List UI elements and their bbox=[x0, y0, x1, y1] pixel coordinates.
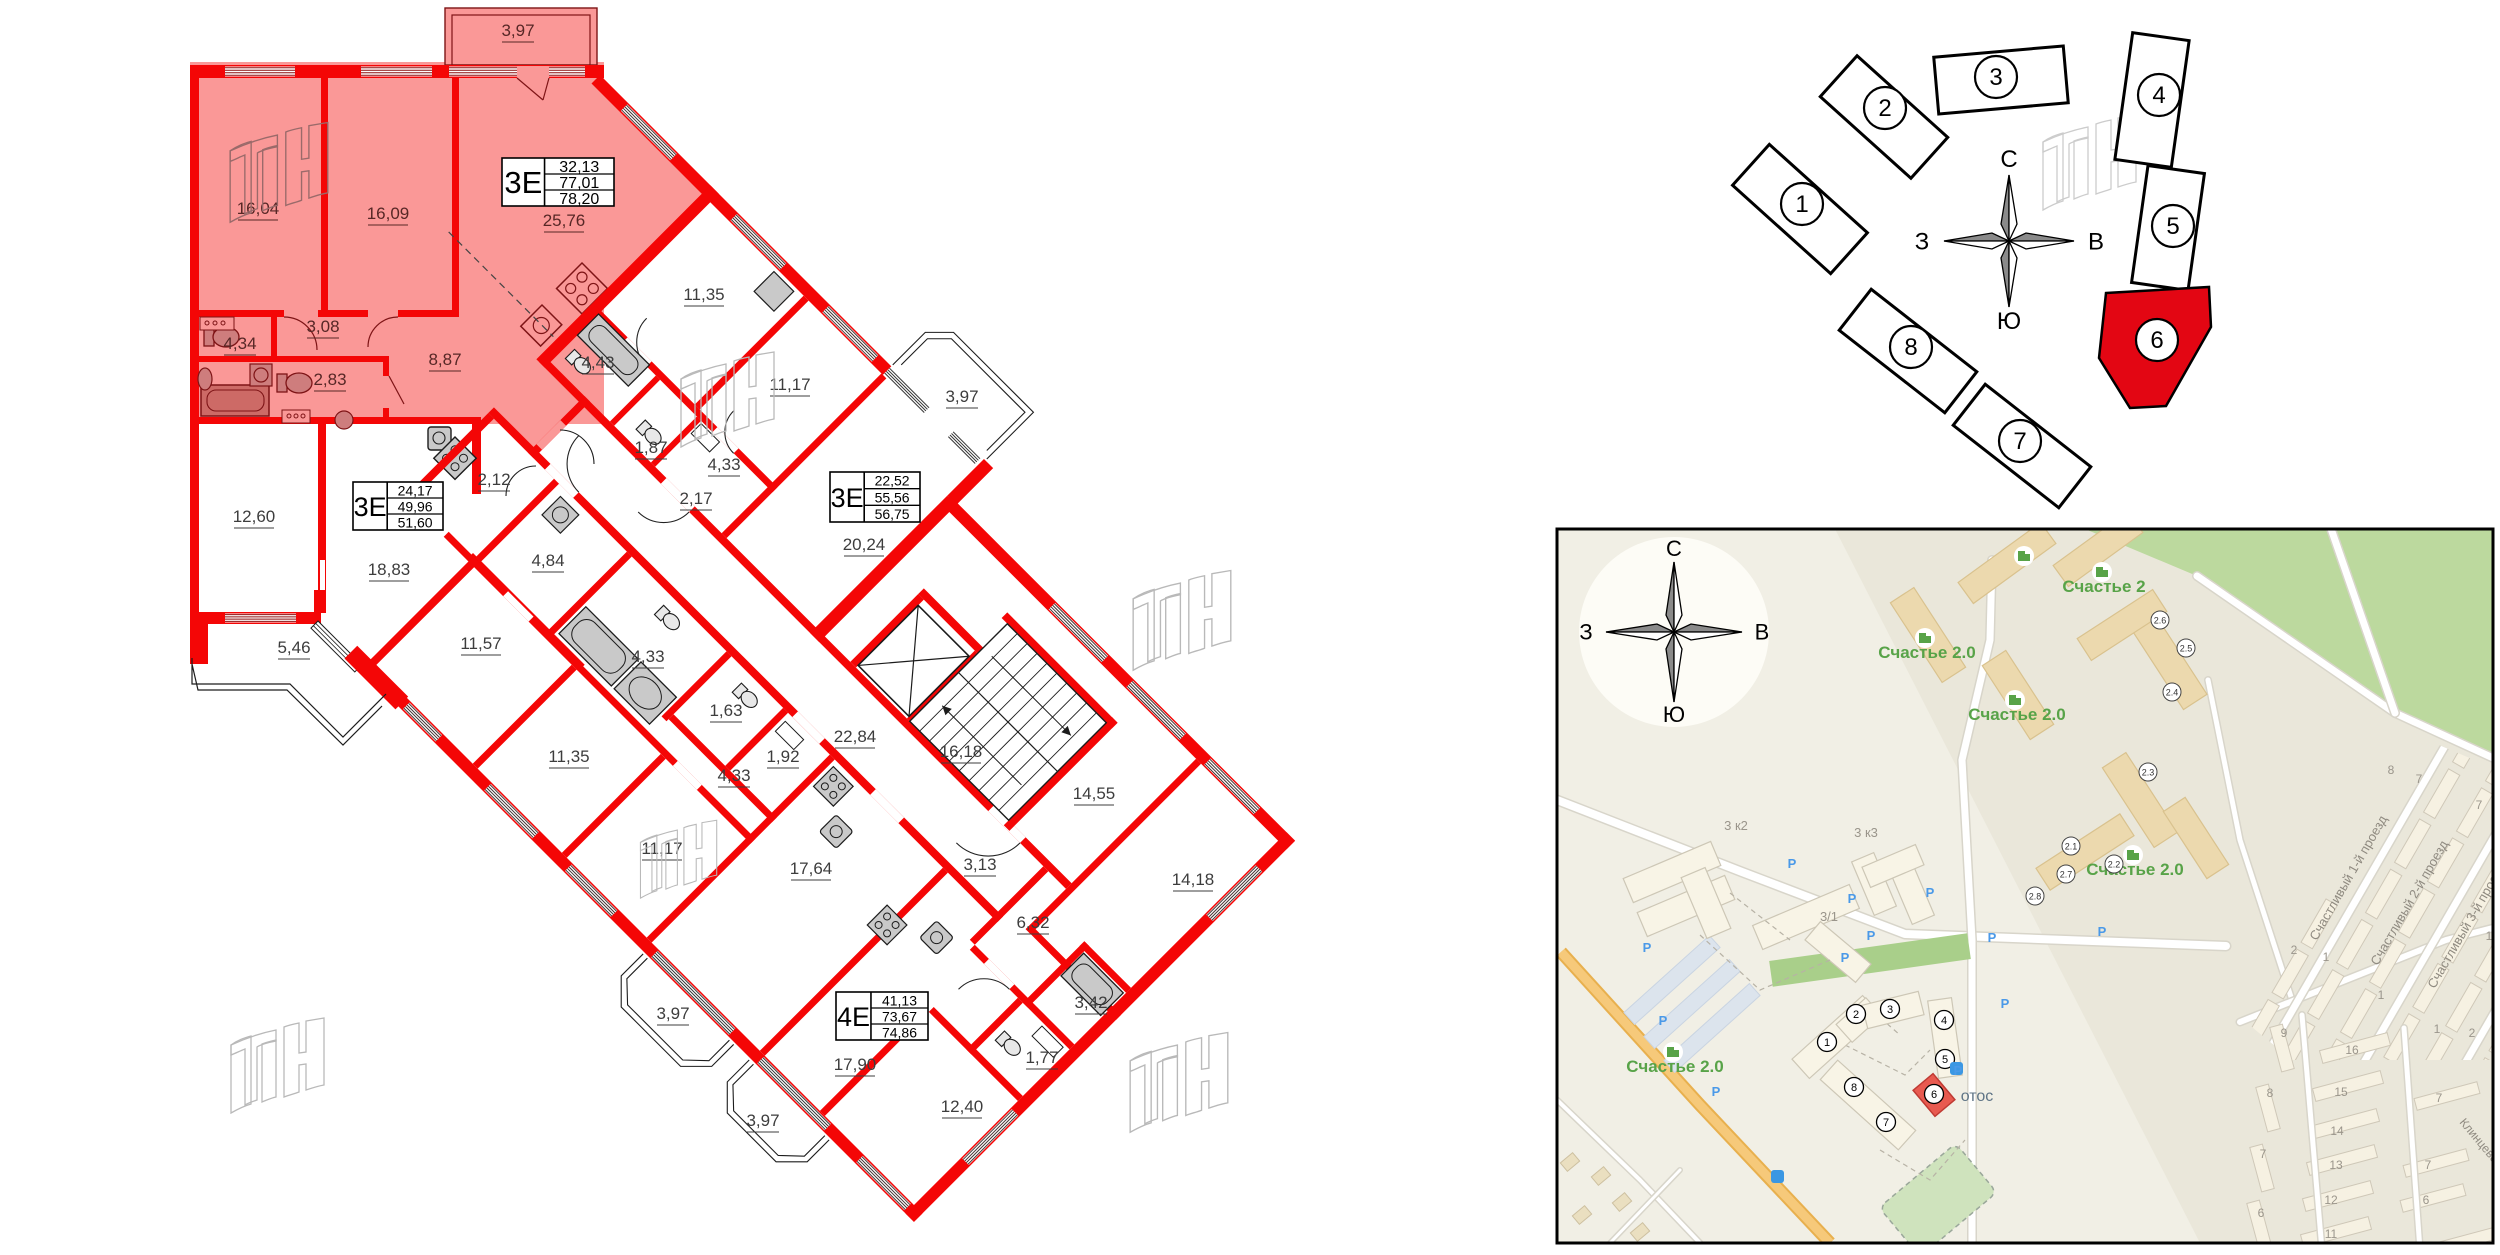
svg-text:8: 8 bbox=[2267, 1086, 2274, 1100]
svg-text:Счастье 2: Счастье 2 bbox=[2062, 577, 2145, 596]
svg-text:14,55: 14,55 bbox=[1073, 784, 1116, 803]
svg-text:5,46: 5,46 bbox=[277, 638, 310, 657]
svg-text:4,84: 4,84 bbox=[531, 551, 564, 570]
svg-text:2,17: 2,17 bbox=[679, 489, 712, 508]
svg-text:2.5: 2.5 bbox=[2180, 644, 2193, 654]
svg-text:4,33: 4,33 bbox=[707, 455, 740, 474]
svg-text:1,77: 1,77 bbox=[1025, 1048, 1058, 1067]
svg-text:6: 6 bbox=[2150, 327, 2163, 354]
svg-text:12: 12 bbox=[2324, 1193, 2338, 1207]
svg-text:3,42: 3,42 bbox=[1074, 993, 1107, 1012]
svg-text:5: 5 bbox=[1942, 1054, 1948, 1066]
svg-text:2.1: 2.1 bbox=[2065, 842, 2078, 852]
svg-text:6,32: 6,32 bbox=[1016, 913, 1049, 932]
svg-text:3,97: 3,97 bbox=[746, 1111, 779, 1130]
svg-text:8: 8 bbox=[1904, 334, 1917, 361]
svg-text:2: 2 bbox=[1878, 95, 1891, 122]
svg-text:55,56: 55,56 bbox=[875, 489, 910, 505]
svg-text:3Е: 3Е bbox=[831, 483, 864, 513]
svg-text:3,97: 3,97 bbox=[501, 21, 534, 40]
svg-text:11,35: 11,35 bbox=[683, 285, 724, 304]
svg-text:1: 1 bbox=[1795, 191, 1808, 218]
svg-text:З: З bbox=[1579, 620, 1592, 645]
svg-text:14: 14 bbox=[2330, 1124, 2344, 1138]
svg-text:3,13: 3,13 bbox=[963, 855, 996, 874]
svg-text:14,18: 14,18 bbox=[1172, 870, 1215, 889]
svg-text:P: P bbox=[2098, 924, 2107, 939]
svg-text:P: P bbox=[1788, 856, 1797, 871]
svg-text:P: P bbox=[1954, 1063, 1963, 1078]
svg-text:P: P bbox=[1848, 891, 1857, 906]
svg-text:17,64: 17,64 bbox=[790, 859, 833, 878]
svg-text:16,09: 16,09 bbox=[367, 204, 410, 223]
svg-text:32,13: 32,13 bbox=[559, 159, 599, 176]
svg-text:56,75: 56,75 bbox=[875, 506, 910, 522]
svg-text:4,43: 4,43 bbox=[581, 353, 614, 372]
svg-text:2,12: 2,12 bbox=[477, 470, 510, 489]
svg-text:4,33: 4,33 bbox=[631, 647, 664, 666]
svg-text:В: В bbox=[2088, 228, 2104, 255]
svg-text:В: В bbox=[1755, 620, 1770, 645]
svg-text:P: P bbox=[1988, 930, 1997, 945]
svg-text:7: 7 bbox=[2436, 1091, 2443, 1105]
svg-text:7: 7 bbox=[2013, 428, 2026, 455]
svg-text:22,84: 22,84 bbox=[834, 727, 877, 746]
svg-text:5: 5 bbox=[2166, 213, 2179, 240]
svg-text:74,86: 74,86 bbox=[882, 1024, 917, 1040]
svg-text:З: З bbox=[1915, 228, 1930, 255]
svg-text:1: 1 bbox=[2323, 950, 2330, 964]
svg-text:3,97: 3,97 bbox=[945, 387, 978, 406]
svg-text:2: 2 bbox=[1853, 1009, 1859, 1021]
svg-text:49,96: 49,96 bbox=[398, 498, 433, 514]
svg-text:9: 9 bbox=[2281, 1026, 2288, 1040]
svg-text:8: 8 bbox=[1851, 1082, 1857, 1094]
svg-text:3Е: 3Е bbox=[354, 492, 387, 522]
svg-text:7: 7 bbox=[2425, 1158, 2432, 1172]
svg-text:12,40: 12,40 bbox=[941, 1097, 984, 1116]
svg-text:1: 1 bbox=[2378, 988, 2385, 1002]
svg-text:7: 7 bbox=[2476, 798, 2483, 812]
svg-text:24,17: 24,17 bbox=[398, 482, 433, 498]
svg-text:51,60: 51,60 bbox=[398, 514, 433, 530]
svg-text:3: 3 bbox=[1989, 64, 2002, 91]
svg-text:P: P bbox=[1712, 1084, 1721, 1099]
svg-text:2.7: 2.7 bbox=[2060, 870, 2073, 880]
svg-text:1: 1 bbox=[2434, 1022, 2441, 1036]
svg-text:2: 2 bbox=[2469, 1026, 2476, 1040]
svg-text:3,97: 3,97 bbox=[656, 1004, 689, 1023]
svg-text:3 к3: 3 к3 bbox=[1854, 825, 1878, 840]
svg-text:4: 4 bbox=[1941, 1015, 1947, 1027]
svg-text:6: 6 bbox=[1931, 1089, 1937, 1101]
svg-text:3,08: 3,08 bbox=[306, 317, 339, 336]
svg-text:С: С bbox=[2000, 146, 2017, 173]
svg-text:11,35: 11,35 bbox=[548, 747, 589, 766]
svg-text:3 к2: 3 к2 bbox=[1724, 818, 1748, 833]
svg-text:P: P bbox=[1643, 940, 1652, 955]
svg-text:P: P bbox=[2001, 996, 2010, 1011]
svg-text:77,01: 77,01 bbox=[559, 175, 599, 192]
svg-text:7: 7 bbox=[1883, 1117, 1889, 1129]
svg-text:Ю: Ю bbox=[1663, 702, 1685, 727]
svg-text:1,87: 1,87 bbox=[634, 438, 667, 457]
svg-text:2.6: 2.6 bbox=[2154, 616, 2167, 626]
svg-text:16,18: 16,18 bbox=[940, 742, 983, 761]
svg-text:2.3: 2.3 bbox=[2142, 768, 2155, 778]
svg-text:4,33: 4,33 bbox=[717, 766, 750, 785]
svg-text:2,83: 2,83 bbox=[313, 370, 346, 389]
svg-text:1: 1 bbox=[1824, 1037, 1830, 1049]
svg-text:11: 11 bbox=[2325, 1227, 2338, 1241]
svg-text:Счастье 2.0: Счастье 2.0 bbox=[2086, 860, 2183, 879]
svg-text:16: 16 bbox=[2345, 1043, 2359, 1057]
svg-text:22,52: 22,52 bbox=[875, 473, 910, 489]
svg-text:3Е: 3Е bbox=[504, 165, 542, 200]
svg-text:2: 2 bbox=[2291, 943, 2298, 957]
svg-text:11,57: 11,57 bbox=[460, 634, 501, 653]
svg-text:17,90: 17,90 bbox=[834, 1055, 877, 1074]
svg-text:15: 15 bbox=[2334, 1085, 2348, 1099]
svg-text:P: P bbox=[1867, 928, 1876, 943]
svg-text:3: 3 bbox=[1887, 1004, 1893, 1016]
svg-text:25,76: 25,76 bbox=[543, 211, 586, 230]
svg-text:P: P bbox=[1926, 885, 1935, 900]
svg-text:4,34: 4,34 bbox=[223, 334, 256, 353]
svg-text:4Е: 4Е bbox=[837, 1002, 870, 1032]
svg-text:P: P bbox=[1841, 950, 1850, 965]
svg-text:12,60: 12,60 bbox=[233, 507, 276, 526]
svg-text:1,63: 1,63 bbox=[709, 701, 742, 720]
svg-text:1,92: 1,92 bbox=[766, 747, 799, 766]
svg-text:73,67: 73,67 bbox=[882, 1008, 917, 1024]
svg-text:2.8: 2.8 bbox=[2029, 892, 2042, 902]
svg-text:2.4: 2.4 bbox=[2166, 688, 2179, 698]
svg-text:7: 7 bbox=[2416, 772, 2423, 786]
svg-text:8: 8 bbox=[2388, 763, 2395, 777]
svg-text:Ю: Ю bbox=[1997, 308, 2021, 335]
svg-text:4: 4 bbox=[2152, 82, 2165, 109]
svg-text:18,83: 18,83 bbox=[368, 560, 411, 579]
svg-text:отос: отос bbox=[1961, 1088, 1994, 1105]
svg-text:С: С bbox=[1666, 536, 1682, 561]
svg-text:78,20: 78,20 bbox=[559, 191, 599, 208]
svg-text:7: 7 bbox=[2260, 1147, 2267, 1161]
svg-text:2.2: 2.2 bbox=[2108, 860, 2121, 870]
svg-text:8,87: 8,87 bbox=[428, 350, 461, 369]
svg-text:3/1: 3/1 bbox=[1820, 909, 1838, 924]
svg-text:P: P bbox=[1659, 1013, 1668, 1028]
svg-text:13: 13 bbox=[2329, 1158, 2343, 1172]
svg-text:11,17: 11,17 bbox=[769, 375, 810, 394]
svg-text:Счастье 2.0: Счастье 2.0 bbox=[1626, 1057, 1723, 1076]
svg-text:Счастье 2.0: Счастье 2.0 bbox=[1968, 705, 2065, 724]
svg-text:6: 6 bbox=[2258, 1206, 2265, 1220]
svg-text:20,24: 20,24 bbox=[843, 535, 886, 554]
svg-text:Счастье 2.0: Счастье 2.0 bbox=[1878, 643, 1975, 662]
svg-text:6: 6 bbox=[2423, 1193, 2430, 1207]
svg-text:41,13: 41,13 bbox=[882, 992, 917, 1008]
